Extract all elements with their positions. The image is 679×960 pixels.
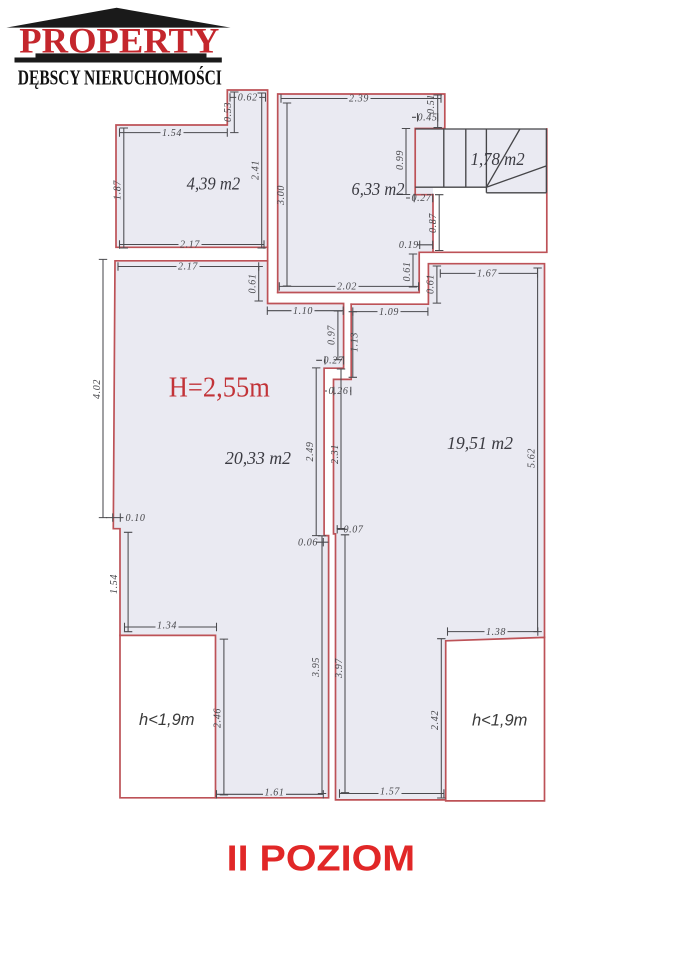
svg-text:1.57: 1.57 xyxy=(380,787,400,798)
svg-text:II POZIOM: II POZIOM xyxy=(227,838,416,879)
svg-text:0.27: 0.27 xyxy=(324,356,344,367)
svg-text:0.61: 0.61 xyxy=(402,262,413,282)
svg-text:20,33 m2: 20,33 m2 xyxy=(225,448,291,468)
svg-text:1.54: 1.54 xyxy=(162,128,182,139)
svg-text:0.07: 0.07 xyxy=(344,525,364,536)
svg-text:3.97: 3.97 xyxy=(334,658,345,679)
svg-text:0.27: 0.27 xyxy=(412,193,432,204)
svg-text:0.06: 0.06 xyxy=(298,537,318,548)
svg-text:2.31: 2.31 xyxy=(330,444,341,464)
svg-text:4.02: 4.02 xyxy=(92,379,103,399)
svg-text:6,33 m2: 6,33 m2 xyxy=(352,179,405,199)
svg-text:1.34: 1.34 xyxy=(157,620,177,631)
svg-text:2.17: 2.17 xyxy=(180,240,200,251)
svg-text:1.09: 1.09 xyxy=(379,307,399,318)
svg-text:0.51: 0.51 xyxy=(426,94,437,114)
svg-text:2.41: 2.41 xyxy=(251,160,262,180)
svg-text:1.13: 1.13 xyxy=(350,332,361,352)
svg-text:2.42: 2.42 xyxy=(430,710,441,730)
svg-text:19,51 m2: 19,51 m2 xyxy=(447,433,513,453)
svg-text:1.38: 1.38 xyxy=(486,627,506,638)
svg-text:0.61: 0.61 xyxy=(426,274,437,294)
svg-text:3.95: 3.95 xyxy=(311,657,322,678)
svg-text:1.10: 1.10 xyxy=(293,306,313,317)
svg-text:h<1,9m: h<1,9m xyxy=(139,711,195,729)
svg-text:0.19: 0.19 xyxy=(399,240,419,251)
svg-text:1,78 m2: 1,78 m2 xyxy=(471,149,525,169)
svg-text:1.67: 1.67 xyxy=(477,269,497,280)
svg-text:0.99: 0.99 xyxy=(395,150,406,170)
svg-text:PROPERTY: PROPERTY xyxy=(19,21,219,61)
svg-text:3.00: 3.00 xyxy=(276,185,287,206)
svg-text:0.61: 0.61 xyxy=(248,274,259,294)
svg-text:2.39: 2.39 xyxy=(349,94,369,105)
svg-text:h<1,9m: h<1,9m xyxy=(472,712,528,730)
svg-text:0.87: 0.87 xyxy=(428,213,439,233)
svg-text:0.10: 0.10 xyxy=(126,513,146,524)
svg-text:4,39 m2: 4,39 m2 xyxy=(187,174,241,194)
svg-text:2.02: 2.02 xyxy=(337,282,357,293)
svg-text:1.87: 1.87 xyxy=(113,180,124,200)
svg-text:0.53: 0.53 xyxy=(223,102,234,122)
svg-text:0.26: 0.26 xyxy=(329,386,349,397)
svg-text:1.61: 1.61 xyxy=(265,788,285,799)
svg-text:1.54: 1.54 xyxy=(109,574,120,594)
svg-text:2.49: 2.49 xyxy=(305,442,316,462)
svg-text:0.62: 0.62 xyxy=(238,93,258,104)
svg-text:0.97: 0.97 xyxy=(327,325,338,345)
svg-text:2.17: 2.17 xyxy=(178,262,198,273)
svg-text:5.62: 5.62 xyxy=(526,448,537,468)
svg-text:DĘBSCY NIERUCHOMOŚCI: DĘBSCY NIERUCHOMOŚCI xyxy=(18,66,222,90)
svg-text:2.46: 2.46 xyxy=(213,708,224,728)
svg-text:H=2,55m: H=2,55m xyxy=(169,372,270,404)
